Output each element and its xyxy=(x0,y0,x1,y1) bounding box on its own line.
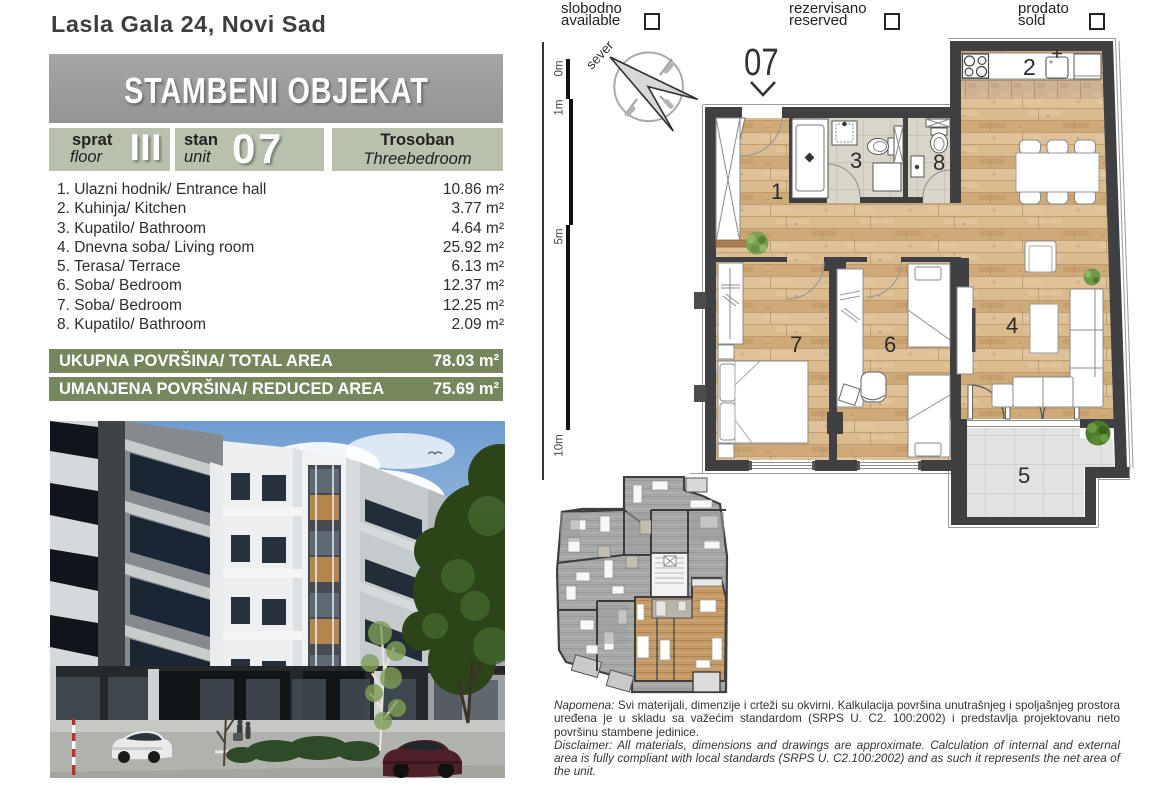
svg-text:4: 4 xyxy=(1006,313,1018,338)
svg-text:6: 6 xyxy=(884,332,896,357)
svg-text:8: 8 xyxy=(933,150,945,175)
svg-text:7: 7 xyxy=(790,332,802,357)
svg-text:sever: sever xyxy=(583,37,617,72)
svg-text:5: 5 xyxy=(1018,463,1030,488)
svg-text:1: 1 xyxy=(771,179,783,204)
svg-text:3: 3 xyxy=(850,148,862,173)
svg-text:2: 2 xyxy=(1023,54,1036,80)
